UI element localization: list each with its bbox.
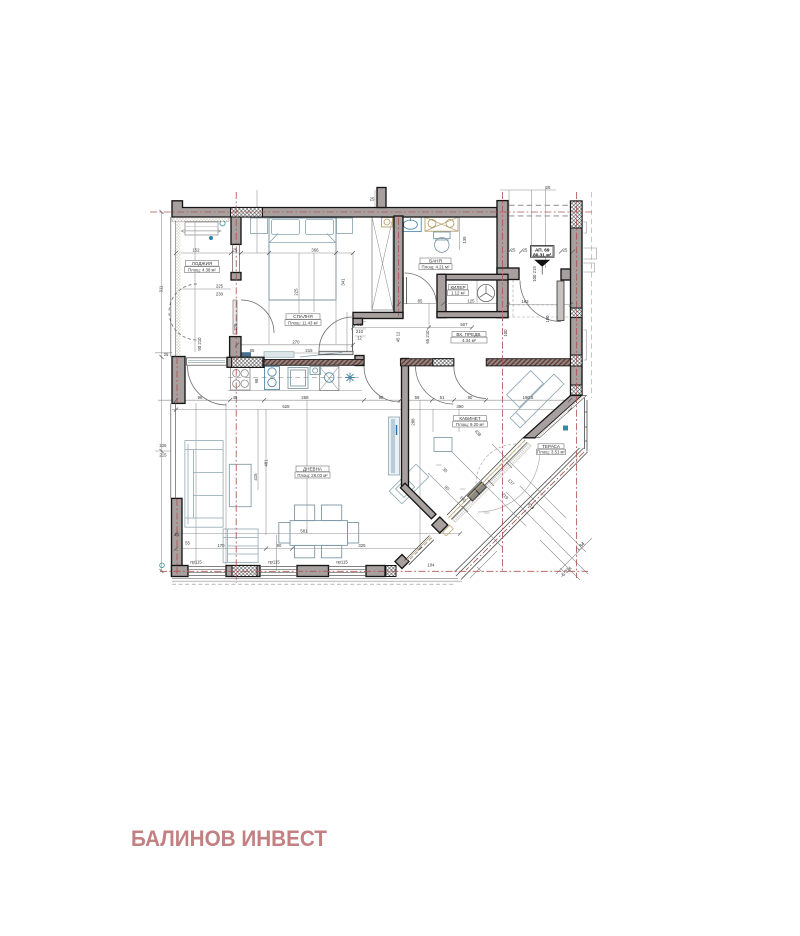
svg-text:139: 139 [462,236,467,244]
svg-text:25: 25 [233,248,238,253]
svg-text:Площ: 9.20 м²: Площ: 9.20 м² [456,422,484,427]
svg-text:137: 137 [507,478,516,487]
svg-text:528: 528 [282,404,290,409]
svg-text:270: 270 [292,339,300,344]
svg-text:219: 219 [501,492,510,501]
svg-text:45: 45 [233,395,238,400]
svg-text:90: 90 [277,543,282,548]
svg-text:438: 438 [474,429,483,438]
svg-text:ТЕРАСА: ТЕРАСА [542,444,561,449]
svg-text:51: 51 [440,395,445,400]
svg-text:90: 90 [379,395,384,400]
svg-text:481: 481 [264,459,269,467]
svg-text:100: 100 [503,329,508,337]
svg-text:ЛОДЖИЯ: ЛОДЖИЯ [192,261,212,266]
svg-text:225: 225 [216,284,224,289]
svg-text:163: 163 [521,299,529,304]
svg-text:КАБИНЕТ: КАБИНЕТ [459,416,480,421]
svg-text:12: 12 [357,336,362,341]
svg-text:90 210: 90 210 [197,337,202,351]
svg-text:90: 90 [468,395,473,400]
svg-text:ВХ. ПРЕДВ.: ВХ. ПРЕДВ. [456,332,481,337]
svg-text:390: 390 [456,404,464,409]
svg-text:190: 190 [545,315,550,323]
svg-text:215: 215 [305,348,313,353]
svg-text:104: 104 [427,562,435,567]
svg-text:65 210: 65 210 [425,330,430,344]
svg-text:25: 25 [164,352,169,357]
svg-text:325: 325 [358,543,366,548]
svg-text:581: 581 [300,528,308,533]
svg-text:507: 507 [460,322,468,327]
svg-text:25: 25 [523,248,528,253]
svg-text:СПАЛНЯ: СПАЛНЯ [293,314,312,319]
svg-text:ДНЕВНА: ДНЕВНА [303,467,323,472]
svg-text:25: 25 [563,248,568,253]
svg-text:КИЛЕР: КИЛЕР [450,285,465,290]
svg-text:25: 25 [546,185,551,190]
svg-text:311: 311 [159,285,164,292]
svg-text:125: 125 [467,298,475,303]
svg-text:Площ: 4.38 м²: Площ: 4.38 м² [188,267,216,272]
svg-text:288: 288 [411,418,416,426]
svg-text:35: 35 [442,466,449,473]
svg-text:Площ: 26.03 м²: Площ: 26.03 м² [297,473,328,478]
svg-text:пр115: пр115 [190,560,202,565]
svg-text:4.34 м²: 4.34 м² [462,338,477,343]
svg-text:215: 215 [159,452,167,457]
svg-text:210: 210 [356,329,364,334]
svg-text:341: 341 [341,278,346,286]
svg-text:90: 90 [444,484,451,491]
svg-text:152: 152 [192,248,200,253]
svg-text:59: 59 [415,395,420,400]
svg-text:268: 268 [301,395,309,400]
svg-text:366: 366 [311,248,319,253]
svg-text:100 219: 100 219 [532,266,537,282]
svg-text:190.5: 190.5 [523,395,534,400]
svg-text:пр115: пр115 [336,560,348,565]
svg-text:45 12: 45 12 [396,331,401,342]
svg-text:170: 170 [217,543,225,548]
svg-text:85: 85 [418,298,423,303]
svg-text:96: 96 [198,395,203,400]
svg-text:БАНЯ: БАНЯ [429,258,442,263]
svg-text:пр115: пр115 [268,560,280,565]
svg-text:90: 90 [357,322,362,327]
svg-text:225: 225 [294,288,299,296]
svg-text:100: 100 [459,495,468,504]
svg-text:55: 55 [185,541,190,546]
svg-text:Площ: 4.21 м²: Площ: 4.21 м² [422,265,450,270]
svg-text:230: 230 [216,292,224,297]
svg-text:1.12 м²: 1.12 м² [451,291,466,296]
svg-text:Площ: 11.43 м²: Площ: 11.43 м² [288,320,319,325]
svg-text:25: 25 [370,197,375,202]
svg-text:55: 55 [250,348,255,353]
svg-text:225: 225 [159,443,167,448]
svg-text:80.31 м²: 80.31 м² [533,252,552,257]
svg-text:-1.84: -1.84 [574,541,586,553]
svg-text:98: 98 [254,378,259,383]
svg-text:25: 25 [511,248,516,253]
svg-text:Площ: 3.51 м²: Площ: 3.51 м² [537,450,565,455]
svg-text:414: 414 [527,502,536,511]
svg-text:225: 225 [233,323,238,331]
svg-text:25: 25 [175,532,180,537]
svg-text:415: 415 [253,473,258,481]
